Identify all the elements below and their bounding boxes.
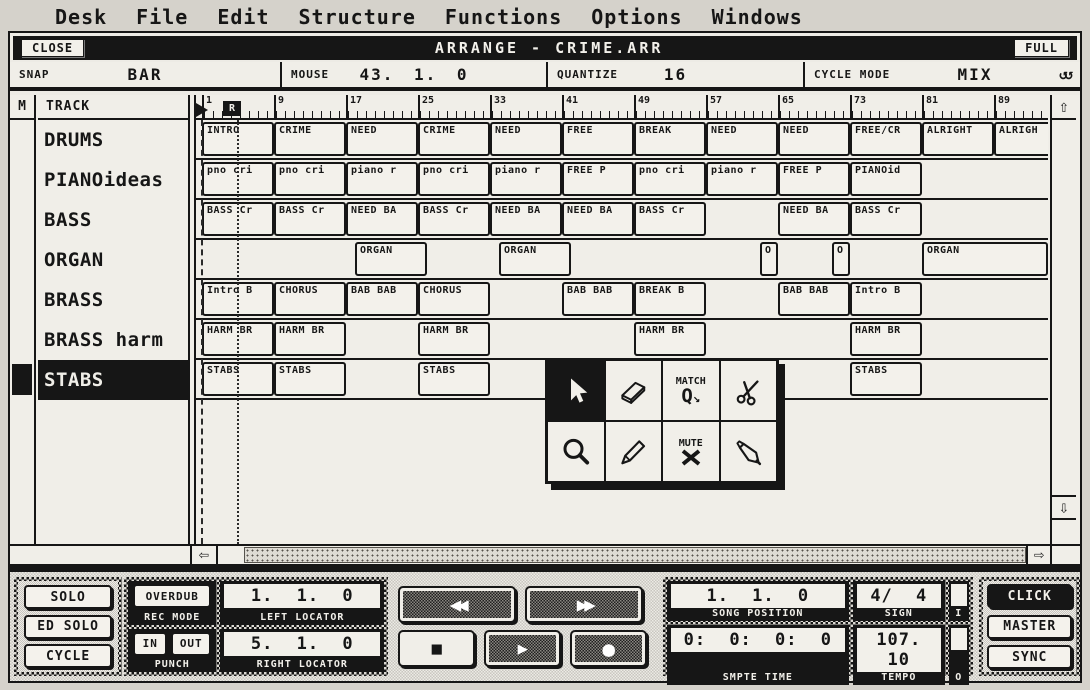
left-locator-line: [201, 120, 203, 544]
ruler-number: 73: [854, 95, 866, 106]
ruler-bar-33: 33: [490, 95, 562, 120]
arrange-part[interactable]: BASS Cr: [634, 202, 706, 236]
match-quantize-tool[interactable]: MATCHQ↘: [663, 361, 719, 420]
midi-out-meter: [951, 628, 967, 650]
midi-out-indicator: O: [949, 625, 969, 685]
arrange-part[interactable]: ALRIGHT: [922, 122, 994, 156]
punch-label: PUNCH: [132, 659, 212, 670]
arrange-part[interactable]: CHORUS: [418, 282, 490, 316]
transport-buttons: ◀◀ ▶▶ ■ ▶ ●: [398, 586, 651, 667]
arrange-part[interactable]: STABS: [418, 362, 490, 396]
toolbox-popup: MATCHQ↘MUTE: [545, 358, 779, 484]
ruler-number: 65: [782, 95, 794, 106]
smpte-cell: 0: 0: 0: 0 SMPTE TIME: [667, 625, 849, 685]
cycle-mode-field[interactable]: CYCLE MODE MIX ↺↺: [805, 62, 1080, 87]
ruler-number: 41: [566, 95, 578, 106]
arrange-part[interactable]: ALRIGH: [994, 122, 1048, 156]
arrange-part[interactable]: piano r: [706, 162, 778, 196]
arrange-part[interactable]: BAB BAB: [562, 282, 634, 316]
glue-icon: [733, 437, 763, 467]
arrange-part[interactable]: NEED: [346, 122, 418, 156]
ruler-number: 81: [926, 95, 938, 106]
scroll-right-arrow[interactable]: ⇨: [1026, 546, 1052, 564]
right-locator-label: RIGHT LOCATOR: [224, 659, 380, 670]
arrange-window: CLOSE ARRANGE - CRIME.ARR FULL SNAP BAR …: [8, 31, 1082, 683]
loop-arrows-icon: ↺↺: [1059, 67, 1070, 83]
rewind-button[interactable]: ◀◀: [398, 586, 516, 623]
track-lane-organ: ORGANORGANOOORGAN: [196, 240, 1048, 280]
title-bar[interactable]: CLOSE ARRANGE - CRIME.ARR FULL: [13, 36, 1077, 60]
arrange-part[interactable]: Intro B: [850, 282, 922, 316]
ruler-number: 57: [710, 95, 722, 106]
track-name-brass[interactable]: BRASS: [38, 280, 188, 320]
punch-out-button[interactable]: OUT: [171, 632, 211, 656]
song-position-display[interactable]: 1. 1. 0: [671, 584, 845, 608]
close-button[interactable]: CLOSE: [21, 39, 84, 57]
arrange-part[interactable]: CRIME: [418, 122, 490, 156]
arrange-part[interactable]: ORGAN: [499, 242, 571, 276]
window-title: ARRANGE - CRIME.ARR: [84, 39, 1014, 57]
ruler-bar-1: 1: [202, 95, 274, 120]
midi-out-label: O: [951, 672, 967, 683]
arrange-part[interactable]: HARM BR: [418, 322, 490, 356]
page-background: DeskFileEditStructureFunctionsOptionsWin…: [0, 0, 1090, 690]
right-locator-line: [237, 120, 239, 544]
track-lane-pianoideas: pno cripno cripiano rpno cripiano rFREE …: [196, 160, 1048, 200]
mute-cell[interactable]: [10, 280, 34, 320]
smpte-label: SMPTE TIME: [671, 672, 845, 683]
tempo-cell: 107. 10 TEMPO: [853, 625, 945, 685]
arrange-part[interactable]: BASS Cr: [274, 202, 346, 236]
arrange-part[interactable]: BASS Cr: [850, 202, 922, 236]
eraser-icon: [618, 376, 648, 406]
arrange-part[interactable]: O: [760, 242, 778, 276]
cycle-button[interactable]: CYCLE: [24, 644, 112, 668]
arrange-part[interactable]: NEED BA: [778, 202, 850, 236]
ruler-number: 49: [638, 95, 650, 106]
ruler-number: 1: [206, 95, 212, 106]
mute-cell[interactable]: [10, 364, 34, 404]
right-locator-cell: 5. 1. 0 RIGHT LOCATOR: [220, 629, 384, 673]
mute-tool[interactable]: MUTE: [663, 422, 719, 481]
h-scroll-thumb[interactable]: [244, 547, 1026, 563]
track-name-bass[interactable]: BASS: [38, 200, 188, 240]
arrange-part[interactable]: STABS: [850, 362, 922, 396]
arrange-part[interactable]: pno cri: [418, 162, 490, 196]
snap-value[interactable]: BAR: [10, 65, 280, 84]
click-button[interactable]: CLICK: [987, 584, 1072, 608]
record-locator-panel: OVERDUB REC MODE 1. 1. 0 LEFT LOCATOR IN…: [124, 577, 388, 676]
scroll-down-arrow[interactable]: ⇩: [1052, 495, 1076, 520]
arrange-part[interactable]: HARM BR: [850, 322, 922, 356]
quantize-field[interactable]: QUANTIZE 16: [548, 62, 805, 87]
pencil-icon: [618, 437, 648, 467]
song-position-label: SONG POSITION: [671, 608, 845, 619]
song-position-cell: 1. 1. 0 SONG POSITION: [667, 581, 849, 621]
midi-in-indicator: I: [949, 581, 969, 621]
ruler-bar-89: 89: [994, 95, 1048, 120]
solo-button[interactable]: SOLO: [24, 585, 112, 609]
track-list: TRACK DRUMSPIANOideasBASSORGANBRASSBRASS…: [38, 95, 190, 544]
mute-cell[interactable]: [10, 320, 34, 360]
mute-cell[interactable]: [10, 200, 34, 240]
arrange-part[interactable]: BASS Cr: [418, 202, 490, 236]
menu-bar: DeskFileEditStructureFunctionsOptionsWin…: [55, 4, 803, 30]
record-button[interactable]: ●: [570, 630, 647, 667]
solo-panel: SOLO ED SOLO CYCLE: [14, 577, 122, 676]
mute-cell[interactable]: [10, 240, 34, 280]
arrange-part[interactable]: piano r: [490, 162, 562, 196]
tempo-label: TEMPO: [857, 672, 941, 683]
sign-cell: 4/ 4 SIGN: [853, 581, 945, 621]
rec-mode-cell: OVERDUB REC MODE: [128, 581, 216, 625]
ruler-number: 9: [278, 95, 284, 106]
track-lane-brass-harm: HARM BRHARM BRHARM BRHARM BRHARM BR: [196, 320, 1048, 360]
pointer-tool[interactable]: [548, 361, 604, 420]
arrange-part[interactable]: NEED: [706, 122, 778, 156]
mute-label: MUTE: [679, 438, 703, 449]
scissors-icon: [733, 376, 763, 406]
track-name-organ[interactable]: ORGAN: [38, 240, 188, 280]
mute-cell[interactable]: [10, 160, 34, 200]
quantize-value[interactable]: 16: [548, 65, 803, 84]
menu-item-edit[interactable]: Edit: [217, 5, 269, 29]
arrange-part[interactable]: CRIME: [274, 122, 346, 156]
arrange-part[interactable]: PIANOid: [850, 162, 922, 196]
vertical-scrollbar[interactable]: ⇧ ⇩: [1050, 95, 1076, 544]
arrange-part[interactable]: FREE: [562, 122, 634, 156]
arrange-part[interactable]: FREE/CR: [850, 122, 922, 156]
mouse-field: MOUSE 43. 1. 0: [282, 62, 548, 87]
track-name-pianoideas[interactable]: PIANOideas: [38, 160, 188, 200]
info-bar: SNAP BAR MOUSE 43. 1. 0 QUANTIZE 16 CYCL…: [10, 62, 1080, 91]
punch-in-button[interactable]: IN: [133, 632, 167, 656]
fast-forward-button[interactable]: ▶▶: [525, 586, 643, 623]
menu-item-options[interactable]: Options: [591, 5, 682, 29]
ruler-bar-41: 41: [562, 95, 634, 120]
cycle-mode-value[interactable]: MIX: [930, 65, 1020, 84]
ruler-bar-57: 57: [706, 95, 778, 120]
ruler-number: 89: [998, 95, 1010, 106]
arrange-part[interactable]: NEED BA: [346, 202, 418, 236]
menu-item-structure[interactable]: Structure: [299, 5, 416, 29]
smpte-display[interactable]: 0: 0: 0: 0: [671, 628, 845, 652]
track-lane-brass: Intro BCHORUSBAB BABCHORUSBAB BABBREAK B…: [196, 280, 1048, 320]
right-locator-display[interactable]: 5. 1. 0: [224, 632, 380, 656]
punch-cell: IN OUT PUNCH: [128, 629, 216, 673]
pointer-icon: [561, 376, 591, 406]
mute-column-header: M: [10, 95, 34, 120]
cycle-mode-label: CYCLE MODE: [814, 68, 890, 81]
arrange-part[interactable]: ORGAN: [922, 242, 1048, 276]
arrange-part[interactable]: HARM BR: [634, 322, 706, 356]
mute-cell[interactable]: [10, 120, 34, 160]
magnify-icon: [561, 437, 591, 467]
full-button[interactable]: FULL: [1014, 39, 1069, 57]
overdub-button[interactable]: OVERDUB: [133, 584, 211, 608]
arrange-part[interactable]: BAB BAB: [346, 282, 418, 316]
ruler-bar-25: 25: [418, 95, 490, 120]
arrange-part[interactable]: NEED: [778, 122, 850, 156]
transport-bar: SOLO ED SOLO CYCLE OVERDUB REC MODE 1. 1…: [10, 572, 1080, 681]
sync-button[interactable]: SYNC: [987, 645, 1072, 669]
ruler-bar-9: 9: [274, 95, 346, 120]
track-lane-bass: BASS CrBASS CrNEED BABASS CrNEED BANEED …: [196, 200, 1048, 240]
sign-display[interactable]: 4/ 4: [857, 584, 941, 608]
arrange-part[interactable]: pno cri: [634, 162, 706, 196]
glue-tool[interactable]: [721, 422, 777, 481]
rec-mode-label: REC MODE: [132, 612, 212, 623]
snap-field[interactable]: SNAP BAR: [10, 62, 282, 87]
arrange-part[interactable]: BREAK: [634, 122, 706, 156]
track-lane-drums: INTROCRIMENEEDCRIMENEEDFREEBREAKNEEDNEED…: [196, 120, 1048, 160]
ruler-number: 33: [494, 95, 506, 106]
menu-item-windows[interactable]: Windows: [712, 5, 803, 29]
left-locator-cell: 1. 1. 0 LEFT LOCATOR: [220, 581, 384, 625]
track-name-stabs[interactable]: STABS: [38, 360, 188, 400]
track-name-brass-harm[interactable]: BRASS harm: [38, 320, 188, 360]
horizontal-scrollbar[interactable]: ⇦ ⇨: [10, 544, 1080, 566]
ruler-bar-81: 81: [922, 95, 994, 120]
arrange-part[interactable]: ORGAN: [355, 242, 427, 276]
arrange-part[interactable]: CHORUS: [274, 282, 346, 316]
sign-label: SIGN: [857, 608, 941, 619]
stop-button[interactable]: ■: [398, 630, 475, 667]
ruler-number: 17: [350, 95, 362, 106]
master-button[interactable]: MASTER: [987, 615, 1072, 639]
mute-column: M: [10, 95, 36, 544]
arrange-part[interactable]: NEED: [490, 122, 562, 156]
scroll-left-arrow[interactable]: ⇦: [192, 546, 218, 564]
mute-x-icon: [680, 449, 702, 466]
midi-in-label: I: [951, 608, 967, 619]
menu-item-functions[interactable]: Functions: [445, 5, 562, 29]
play-button[interactable]: ▶: [484, 630, 561, 667]
scissors-tool[interactable]: [721, 361, 777, 420]
click-panel: CLICK MASTER SYNC: [979, 577, 1080, 676]
track-list-header: TRACK: [38, 95, 188, 120]
arrange-part[interactable]: NEED BA: [490, 202, 562, 236]
arrange-part[interactable]: BAB BAB: [778, 282, 850, 316]
mouse-position-value: 43. 1. 0: [282, 65, 546, 84]
ed-solo-button[interactable]: ED SOLO: [24, 615, 112, 639]
arrange-part[interactable]: STABS: [274, 362, 346, 396]
arrange-part[interactable]: FREE P: [778, 162, 850, 196]
pencil-tool[interactable]: [606, 422, 662, 481]
ruler-number: 25: [422, 95, 434, 106]
position-panel: 1. 1. 0 SONG POSITION 4/ 4 SIGN I 0: 0: …: [663, 577, 974, 676]
ruler-bar-73: 73: [850, 95, 922, 120]
magnify-tool[interactable]: [548, 422, 604, 481]
menu-item-desk[interactable]: Desk: [55, 5, 107, 29]
arrange-part[interactable]: O: [832, 242, 850, 276]
arrange-part[interactable]: FREE P: [562, 162, 634, 196]
menu-item-file[interactable]: File: [136, 5, 188, 29]
arrange-part[interactable]: BREAK B: [634, 282, 706, 316]
ruler-bar-17: 17: [346, 95, 418, 120]
arrange-part[interactable]: HARM BR: [274, 322, 346, 356]
arrange-part[interactable]: pno cri: [274, 162, 346, 196]
midi-in-meter: [951, 584, 967, 606]
timeline-ruler[interactable]: R 1917253341495765738189: [196, 95, 1048, 120]
h-scroll-left-pad: [10, 546, 192, 564]
arrange-part[interactable]: NEED BA: [562, 202, 634, 236]
match-q-icon: Q↘: [681, 387, 700, 406]
ruler-bar-49: 49: [634, 95, 706, 120]
left-locator-label: LEFT LOCATOR: [224, 612, 380, 623]
eraser-tool[interactable]: [606, 361, 662, 420]
ruler-bar-65: 65: [778, 95, 850, 120]
scroll-up-arrow[interactable]: ⇧: [1052, 95, 1076, 120]
tempo-display[interactable]: 107. 10: [857, 628, 941, 672]
left-locator-display[interactable]: 1. 1. 0: [224, 584, 380, 608]
arrange-part[interactable]: piano r: [346, 162, 418, 196]
track-name-drums[interactable]: DRUMS: [38, 120, 188, 160]
